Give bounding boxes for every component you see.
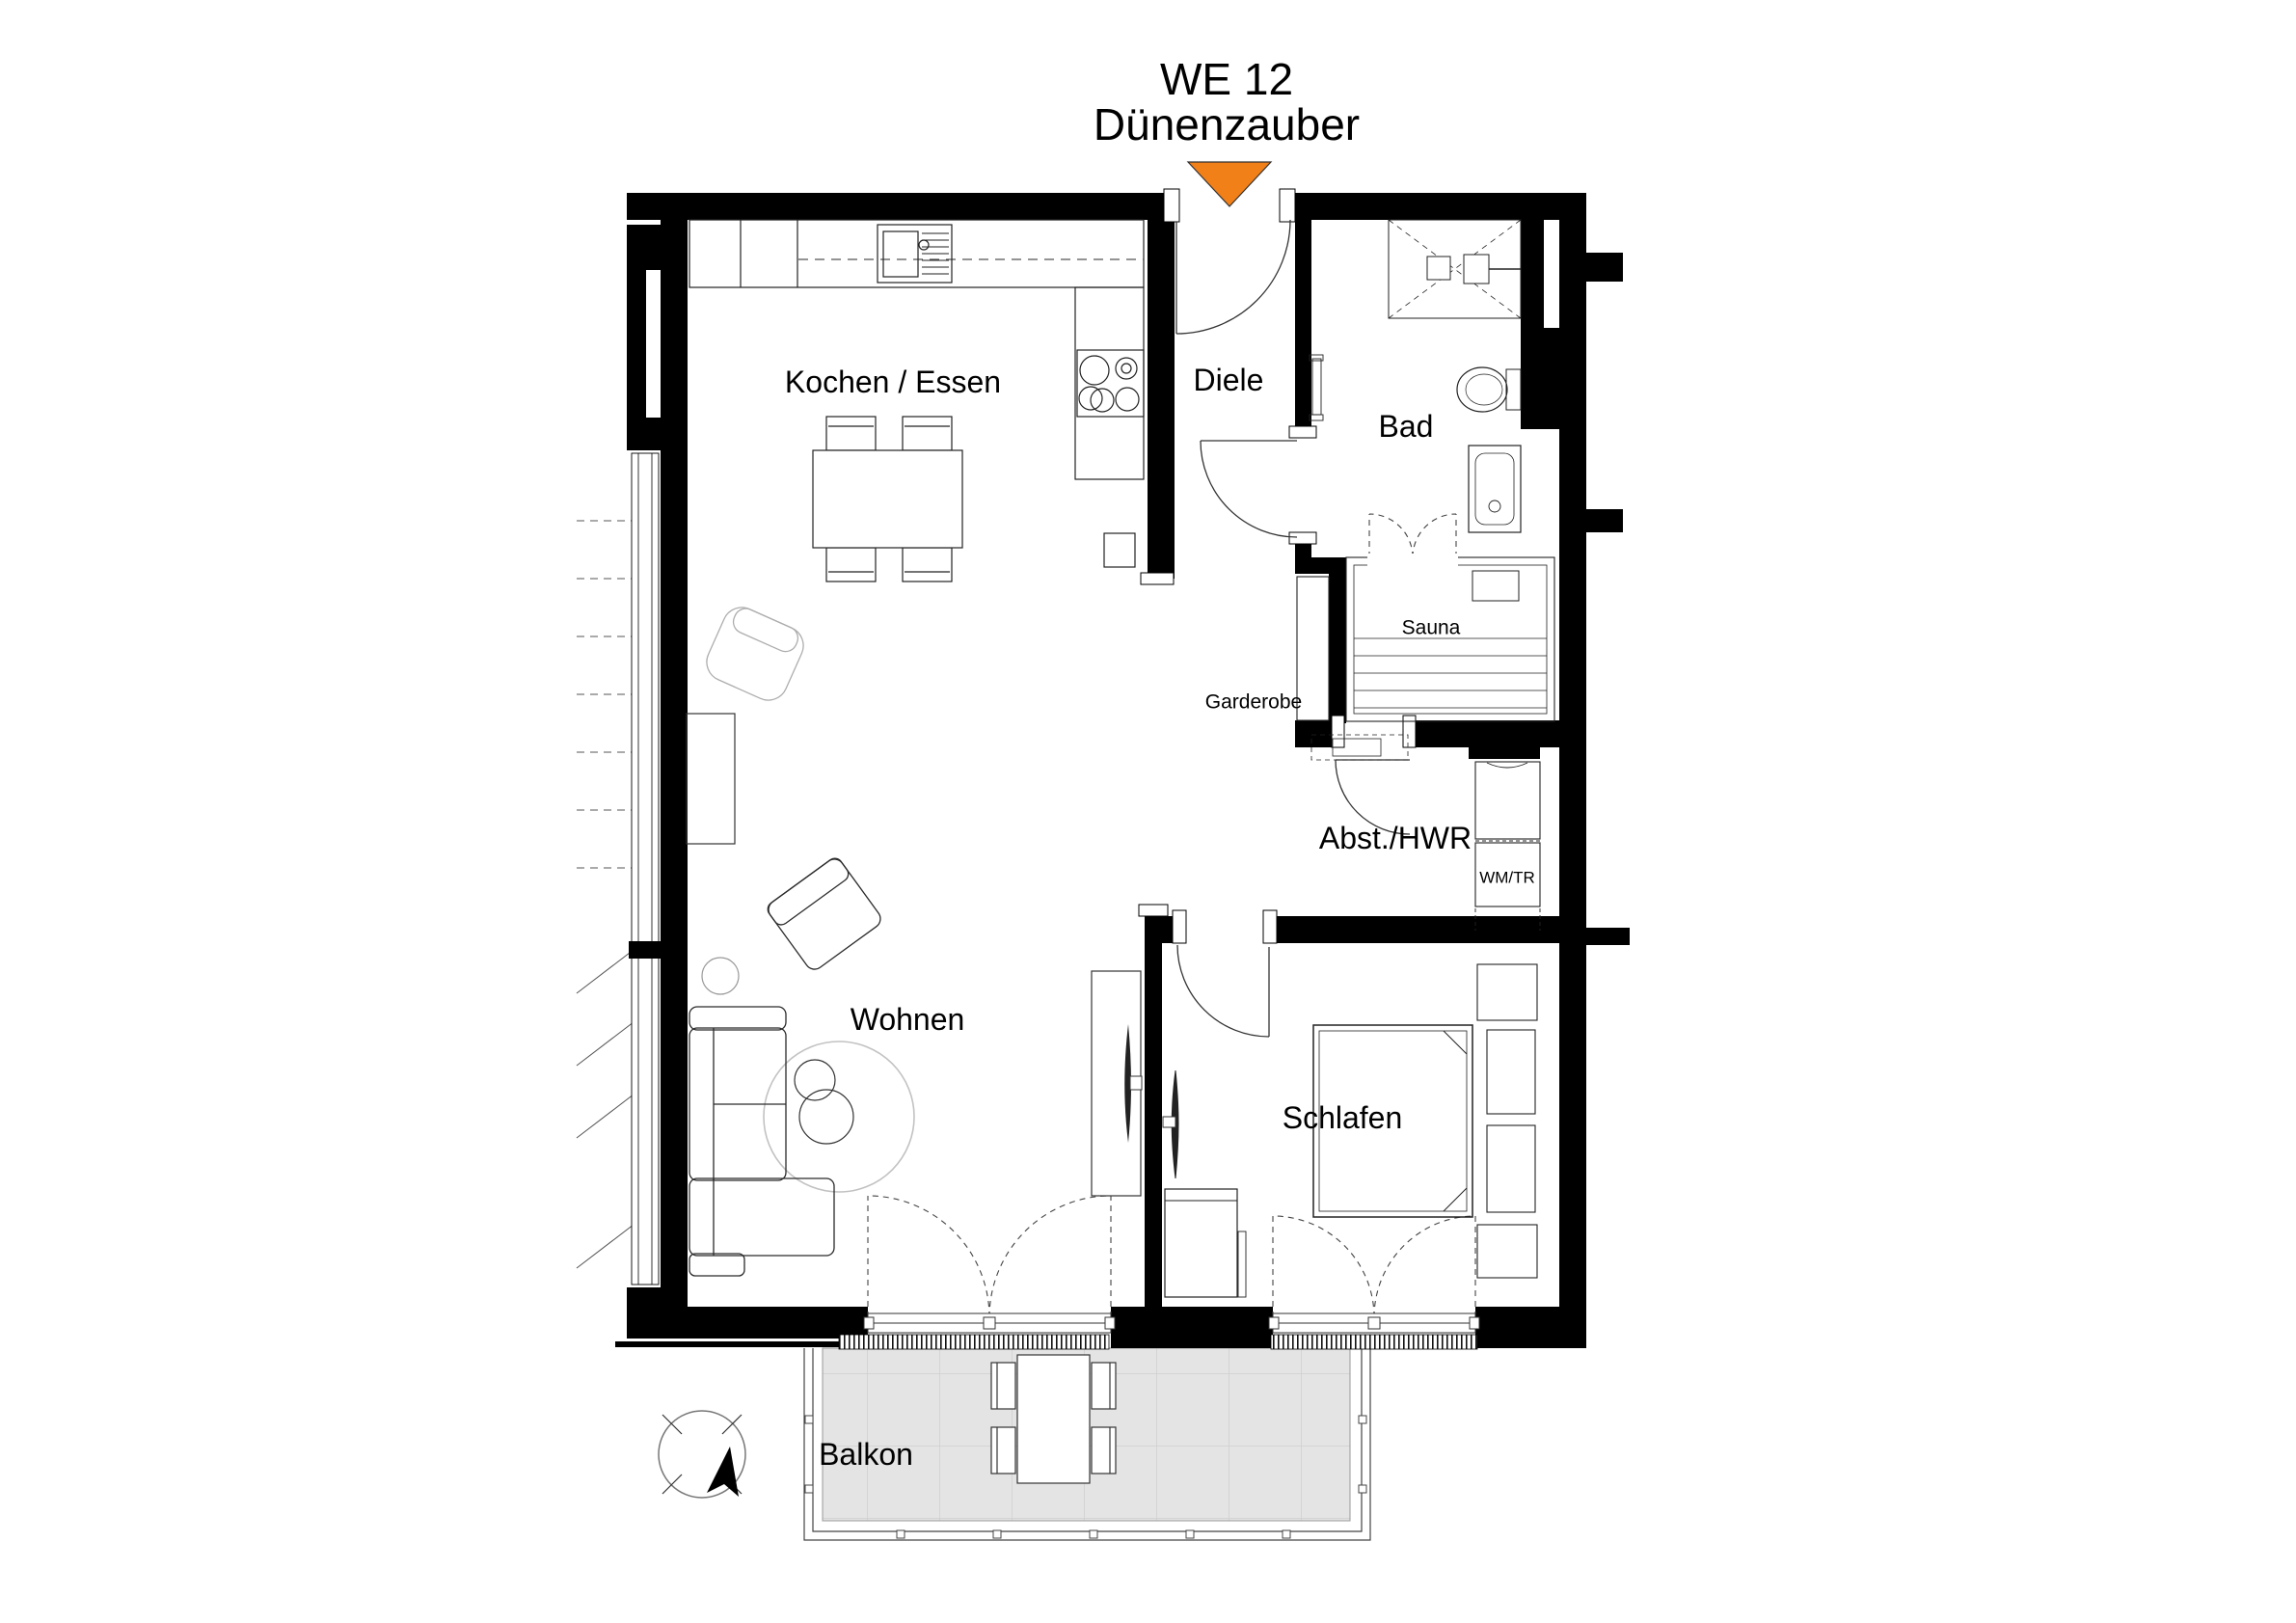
floorplan-drawing — [0, 0, 2296, 1623]
wall-top-right — [1283, 193, 1586, 220]
nightstand — [1477, 1225, 1537, 1278]
wall-stub-right — [1586, 509, 1623, 532]
room-label-wohnen: Wohnen — [851, 1004, 965, 1035]
room-label-diele: Diele — [1194, 365, 1264, 395]
balcony-chair — [1092, 1363, 1116, 1409]
wall-sauna-left — [1329, 557, 1346, 723]
sauna-door — [1369, 514, 1456, 557]
kitchen-sink — [878, 225, 952, 283]
wall-diele-bad — [1295, 220, 1311, 434]
shower — [1389, 220, 1521, 318]
kitchen-counter-side — [1075, 287, 1144, 479]
plan-title-name: Dünenzauber — [1094, 102, 1360, 147]
balcony-chair — [991, 1427, 1015, 1474]
wall-bottom-2 — [1111, 1307, 1273, 1348]
wm-partition — [1469, 738, 1540, 759]
doors — [1176, 220, 1410, 1037]
slab-edge — [615, 1341, 868, 1347]
room-label-garderobe: Garderobe — [1205, 692, 1302, 713]
wall-left — [661, 193, 688, 1339]
armchair-light — [701, 602, 810, 707]
kitchen-cabinet — [1104, 533, 1135, 567]
kitchen — [689, 220, 1144, 582]
wall-stub-right — [1586, 928, 1630, 945]
entrance-marker-icon — [1188, 162, 1271, 206]
dashed-doors — [868, 514, 1475, 1317]
wall-shaft — [1521, 328, 1559, 429]
stair-window — [632, 453, 659, 1285]
wall-bottom-3 — [1475, 1307, 1586, 1348]
shower-drain — [1427, 257, 1450, 280]
wall-pillar — [627, 225, 675, 270]
bedroom-balcony-door — [1273, 1216, 1475, 1317]
wall-bedroom-top — [1268, 916, 1586, 943]
sideboard — [687, 714, 735, 844]
room-label-sauna: Sauna — [1402, 618, 1461, 638]
dining-table — [813, 450, 962, 548]
floorplan-page: WE 12 Dünenzauber Kochen / Essen Diele B… — [0, 0, 2296, 1623]
towel-radiator — [1310, 355, 1323, 420]
stairwell — [577, 453, 659, 1285]
room-label-kochen-essen: Kochen / Essen — [785, 366, 1001, 397]
north-arrow — [707, 1447, 739, 1497]
coffee-table — [799, 1090, 853, 1144]
wall-right — [1559, 193, 1586, 1339]
sauna-door-opening — [1367, 554, 1458, 569]
room-label-schlafen: Schlafen — [1283, 1102, 1403, 1133]
sauna-heater — [1472, 571, 1519, 601]
bed-headboard — [1487, 1030, 1535, 1114]
living-balcony-door — [868, 1196, 1111, 1317]
balcony-chair — [1092, 1427, 1116, 1474]
wall-pillar — [627, 418, 675, 450]
bathroom — [1310, 220, 1521, 532]
washer-dryer — [1475, 762, 1540, 931]
toilet — [1457, 367, 1521, 412]
wall-stub — [629, 941, 661, 959]
stove — [1077, 350, 1144, 417]
room-label-wm-tr: WM/TR — [1479, 870, 1535, 886]
dresser — [1165, 1189, 1237, 1297]
dining-set — [813, 417, 962, 582]
wall-top-left — [627, 193, 1172, 220]
wall-wohnen-schlafen — [1145, 916, 1162, 1339]
nightstand — [1477, 964, 1537, 1020]
balcony-chair — [991, 1363, 1015, 1409]
bedroom-door — [1177, 945, 1269, 1037]
wall-shaft — [1521, 220, 1544, 328]
bed-headboard — [1487, 1125, 1535, 1212]
plan-title-unit: WE 12 — [1160, 57, 1293, 101]
living-room — [687, 602, 1142, 1276]
entrance-door — [1176, 220, 1290, 334]
shower-fixture — [1464, 255, 1489, 284]
wall-kitchen-diele — [1148, 220, 1175, 579]
wall-stub-right — [1586, 253, 1623, 282]
washbasin — [1469, 446, 1521, 532]
wall-bottom-1 — [627, 1307, 868, 1339]
balcony-table — [1017, 1355, 1090, 1483]
room-label-balkon: Balkon — [819, 1439, 913, 1470]
armchair-dark — [765, 855, 884, 973]
wall-pillar — [627, 270, 646, 419]
plant — [702, 958, 739, 994]
compass-icon — [659, 1411, 745, 1498]
bath-door — [1201, 441, 1297, 537]
side-table — [795, 1060, 835, 1100]
room-label-bad: Bad — [1379, 411, 1434, 442]
room-label-abst-hwr: Abst./HWR — [1319, 823, 1472, 853]
sauna-benches — [1354, 638, 1547, 708]
